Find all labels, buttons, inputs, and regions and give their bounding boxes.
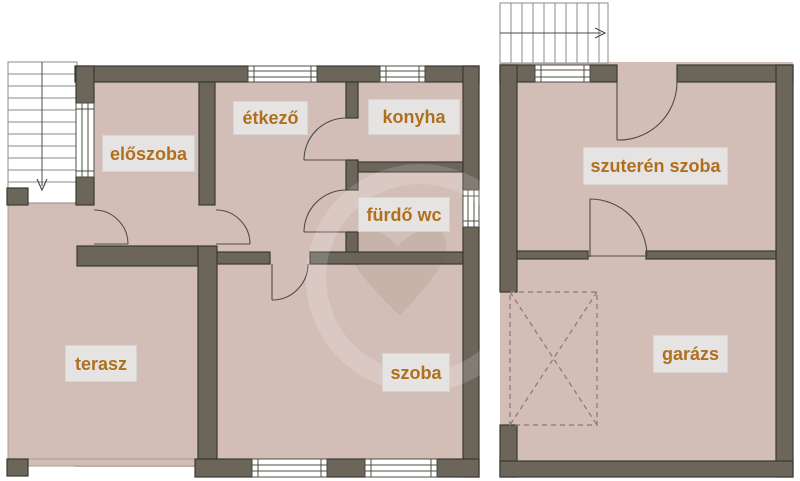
wall-segment bbox=[317, 66, 380, 82]
basement-floor-area bbox=[500, 62, 793, 462]
room-label-furdo-wc: fürdő wc bbox=[358, 197, 450, 232]
terrace-area bbox=[8, 203, 198, 466]
wall-segment bbox=[198, 246, 217, 459]
wall-segment bbox=[590, 65, 617, 82]
room-label-eloszoba: előszoba bbox=[102, 135, 195, 172]
wall-segment bbox=[437, 459, 479, 477]
wall-segment bbox=[195, 459, 252, 477]
wall-segment bbox=[75, 66, 248, 82]
room-label-szuteren-szoba: szuterén szoba bbox=[583, 147, 728, 185]
basement-floor-plan bbox=[500, 3, 793, 477]
wall-segment bbox=[500, 65, 517, 292]
wall-segment bbox=[646, 251, 776, 259]
room-label-konyha: konyha bbox=[368, 99, 460, 135]
window-kitchen-north bbox=[380, 66, 425, 82]
basement-staircase bbox=[500, 3, 608, 63]
upper-staircase bbox=[8, 62, 77, 203]
wall-segment bbox=[463, 227, 479, 477]
wall-segment bbox=[215, 252, 270, 264]
room-label-etkezo: étkező bbox=[233, 101, 308, 135]
window-room-south-1 bbox=[252, 459, 327, 477]
wall-segment bbox=[76, 66, 94, 103]
wall-segment bbox=[463, 66, 479, 190]
window-hall-west bbox=[76, 103, 94, 177]
terrace-post bbox=[7, 459, 28, 476]
floor-plan-canvas: előszoba étkező konyha fürdő wc szoba te… bbox=[0, 0, 800, 481]
floor-plan-drawing bbox=[0, 0, 800, 481]
wall-segment bbox=[77, 246, 198, 266]
window-dining-north bbox=[248, 66, 317, 82]
terrace-slab bbox=[8, 203, 198, 466]
terrace-post bbox=[7, 188, 28, 205]
window-basement-north bbox=[535, 65, 590, 82]
wall-segment bbox=[500, 461, 793, 477]
wall-segment bbox=[346, 82, 358, 118]
room-label-garazs: garázs bbox=[653, 335, 728, 373]
wall-segment bbox=[199, 82, 215, 205]
wall-segment bbox=[517, 251, 588, 259]
wall-segment bbox=[76, 177, 94, 205]
wall-segment bbox=[776, 65, 793, 477]
wall-segment bbox=[327, 459, 365, 477]
room-label-szoba: szoba bbox=[382, 353, 450, 392]
window-room-south-2 bbox=[365, 459, 437, 477]
room-label-terasz: terasz bbox=[65, 345, 137, 382]
